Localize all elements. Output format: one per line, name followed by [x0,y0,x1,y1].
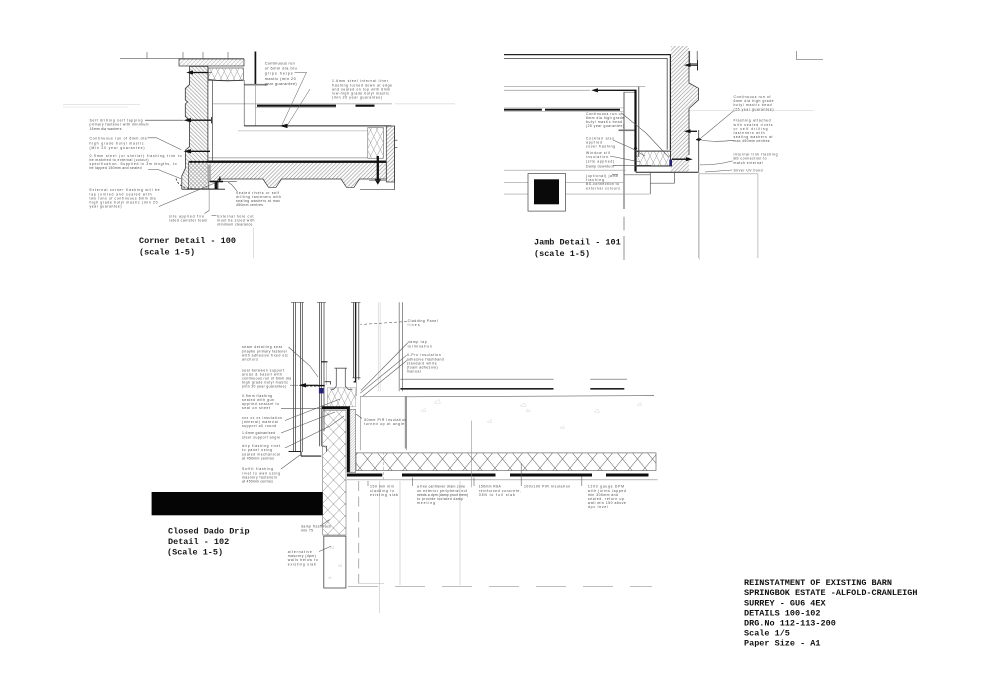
svg-text:0.9mm flashingsealed with guna: 0.9mm flashingsealed with gunapplied sea… [242,394,279,410]
svg-text:Cladding Panellines: Cladding Panellines [408,319,438,327]
svg-text:seal between supportareas & ba: seal between supportareas & baseil withc… [242,368,291,388]
svg-text:Cocktail alsoappliedcover flas: Cocktail alsoappliedcover flashing [586,136,615,148]
svg-text:Continuous run of6mm dia high: Continuous run of6mm dia high gradebutyl… [586,112,624,128]
svg-text:DETAILS 100-102: DETAILS 100-102 [744,608,821,618]
svg-text:Continuous runof 6mm dia blugr: Continuous runof 6mm dia blugrips helpsm… [265,61,298,86]
svg-text:X-Pro insulationadhesive flash: X-Pro insulationadhesive flashbandstanda… [407,353,444,373]
svg-text:(scale 1-5): (scale 1-5) [534,249,590,259]
svg-text:REINSTATMENT OF EXISTING BARN: REINSTATMENT OF EXISTING BARN [744,578,892,588]
svg-text:xxx xx xx insulation(mineral): xxx xx xx insulation(mineral) materialsu… [242,416,282,428]
svg-text:External hole cutmust be sized: External hole cutmust be sized withminim… [217,214,254,226]
svg-text:Soffit flashingrivet to wall u: Soffit flashingrivet to wall usingmasonr… [242,467,280,483]
svg-text:(Scale 1-5): (Scale 1-5) [167,548,223,558]
svg-text:a free cantilever drain zoneon: a free cantilever drain zoneon exterior … [417,485,468,505]
svg-text:1200 gauge DPMwith joints lapp: 1200 gauge DPMwith joints lappedmin 300m… [588,485,626,510]
svg-text:1.6mm steel internal linerflas: 1.6mm steel internal linerflashing turne… [332,79,392,99]
svg-text:Damp downturn: Damp downturn [586,165,614,169]
svg-text:Scale 1/5: Scale 1/5 [744,629,790,639]
svg-text:seam detailing seat(maybe prim: seam detailing seat(maybe primary fasten… [242,345,288,361]
svg-text:drip flashing rivetto panel us: drip flashing rivetto panel usingsealed … [242,444,280,460]
svg-text:Detail - 102: Detail - 102 [168,537,229,547]
svg-text:1.6mm galvanisedsteel support: 1.6mm galvanisedsteel support angle [242,431,280,439]
svg-text:SURREY - GU6 4EX: SURREY - GU6 4EX [744,598,827,608]
svg-text:(optional) jambflashingBS-conn: (optional) jambflashingBS-connection toe… [586,174,620,190]
svg-text:SPRINGBOK ESTATE -ALFOLD-CRANL: SPRINGBOK ESTATE -ALFOLD-CRANLEIGH [744,588,917,598]
svg-text:Sealed rivets or selfdrilling: Sealed rivets or selfdrilling fasteners … [236,191,281,207]
svg-text:50mm PIR Insulationturned up a: 50mm PIR Insulationturned up at angle [364,418,406,426]
svg-text:DRG.No 112-113-200: DRG.No 112-113-200 [744,619,836,629]
svg-text:Flashing attachedwith sealed r: Flashing attachedwith sealed rivetsor se… [734,119,773,144]
svg-text:(scale 1-5): (scale 1-5) [139,247,195,257]
svg-text:Continuous run of 6mm diahigh: Continuous run of 6mm diahigh grade buty… [90,137,147,150]
svg-text:Window sillinsulation(site app: Window sillinsulation(site applied) [586,151,614,163]
svg-text:Silver UV bond: Silver UV bond [734,168,763,172]
svg-text:damp laptermination: damp laptermination [408,340,432,348]
svg-text:Internal trim flashingBS conne: Internal trim flashingBS connection toma… [734,153,778,165]
svg-text:Closed Dado Drip: Closed Dado Drip [168,527,250,537]
svg-text:site applied firerated caniste: site applied firerated canister foam [169,214,207,222]
svg-text:Corner Detail - 100: Corner Detail - 100 [139,236,236,246]
svg-text:100x100 PIR Insulation: 100x100 PIR Insulation [524,485,570,489]
svg-text:150 mm mincladding toexisting: 150 mm mincladding toexisting slab [370,485,398,497]
svg-text:External corner flashing will: External corner flashing will belap join… [90,188,160,208]
svg-text:150mm RSAreinforced concrete,3: 150mm RSAreinforced concrete,35N to full… [479,485,521,497]
svg-text:Self drilling self tappingprim: Self drilling self tappingprimary fasten… [90,119,149,131]
svg-text:alternativemasonry (dpm)walls: alternativemasonry (dpm)walls below toex… [288,550,318,566]
svg-text:0.9mm steel (or similar) flash: 0.9mm steel (or similar) flashing trim t… [90,154,182,170]
svg-text:Continuous run of6mm dia high: Continuous run of6mm dia high gradebutyl… [734,95,774,111]
svg-text:Paper Size - A1: Paper Size - A1 [744,639,821,649]
svg-text:Jamb Detail - 101: Jamb Detail - 101 [534,238,621,248]
